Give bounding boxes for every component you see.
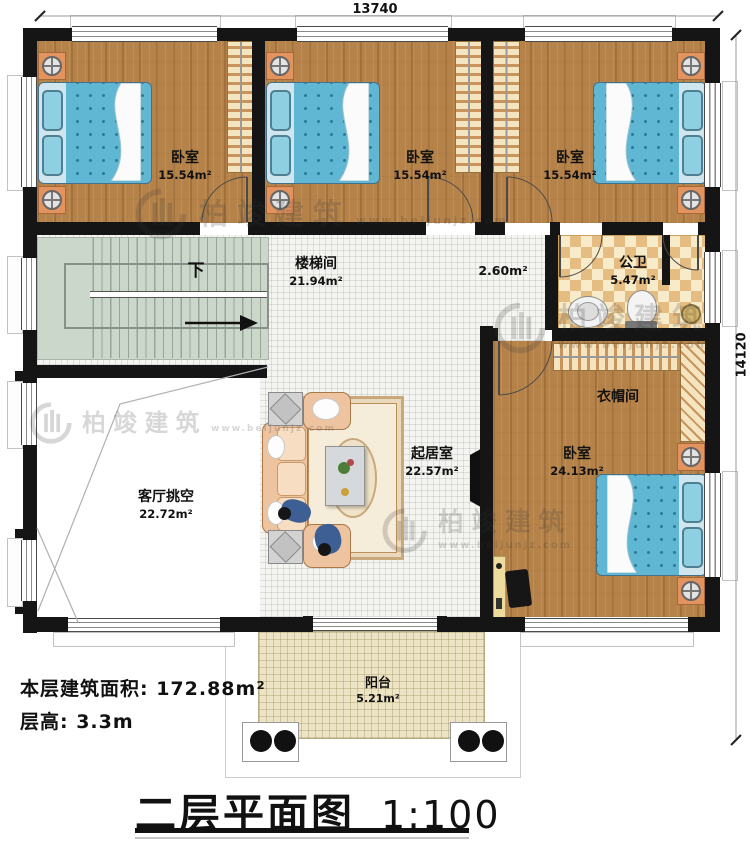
stair-rail-center (90, 291, 267, 298)
nightstand-lamp-icon (266, 186, 294, 214)
bed-sheet (101, 83, 141, 181)
wall (550, 222, 560, 235)
throw-pillow (267, 435, 285, 459)
nightstand-lamp-icon (38, 52, 66, 80)
decor-item (496, 598, 502, 609)
window (72, 26, 217, 42)
person-figure-head (278, 507, 291, 520)
room-area: 15.54m² (158, 168, 211, 182)
floor-plan: 柏竣建筑 www.beijunjz.com 柏竣建筑 www.beijunjz.… (0, 0, 750, 854)
room-label-master-bedroom: 卧室 24.13m² (550, 446, 603, 478)
room-area: 15.54m² (393, 168, 446, 182)
wall (480, 326, 493, 617)
room-area: 22.72m² (138, 507, 194, 521)
wall (23, 187, 37, 258)
wall (688, 617, 720, 632)
pillow (270, 135, 291, 176)
window (21, 77, 37, 187)
wall (23, 28, 37, 77)
room-label-living-void: 客厅挑空 22.72m² (138, 489, 194, 521)
window-sill (722, 471, 738, 581)
wall (37, 222, 200, 235)
pillow (42, 135, 63, 176)
pillow (270, 90, 291, 131)
dimension-width: 13740 (0, 2, 750, 17)
toilet-icon (627, 290, 657, 325)
room-label-cloakroom: 衣帽间 (597, 386, 639, 406)
person-figure-head (318, 543, 331, 556)
nightstand-lamp-icon (677, 577, 705, 605)
wall (23, 617, 68, 632)
pier-column-icon (458, 730, 480, 752)
room-label-bedroom-2: 卧室 15.54m² (393, 150, 446, 182)
sink-basin (577, 302, 599, 321)
wall (440, 617, 525, 632)
wall (248, 222, 426, 235)
wall (23, 365, 267, 378)
nightstand-lamp-icon (266, 52, 294, 80)
window (21, 258, 37, 330)
wardrobe-bedroom-1 (227, 41, 255, 173)
bed (596, 474, 707, 576)
door-post (303, 616, 313, 632)
room-label-bedroom-3: 卧室 15.54m² (543, 150, 596, 182)
wardrobe-bedroom-2 (455, 41, 483, 173)
nightstand-lamp-icon (38, 186, 66, 214)
window (21, 540, 37, 601)
wall (698, 222, 705, 235)
cloakroom-rack-right (680, 343, 707, 442)
floor-drain-icon (681, 304, 701, 324)
nightstand-lamp-icon (677, 443, 705, 471)
room-area: 22.57m² (405, 464, 458, 478)
room-area: 15.54m² (543, 168, 596, 182)
pillow (42, 90, 63, 131)
wall (252, 28, 265, 235)
door-post (437, 616, 447, 632)
bed-sheet (329, 83, 369, 181)
wall (705, 187, 720, 252)
floor-area-note: 本层建筑面积: 172.88m² (20, 674, 266, 701)
wall (552, 328, 705, 341)
tv-icon (505, 569, 532, 609)
window (68, 618, 220, 632)
wall (220, 617, 307, 632)
wall (602, 222, 663, 235)
window-sill (520, 632, 694, 647)
wall (545, 235, 558, 330)
room-name: 起居室 (405, 446, 458, 464)
wall (481, 28, 493, 235)
room-area: 21.94m² (289, 274, 342, 288)
corridor-area-label: 2.60m² (478, 263, 527, 278)
wall (662, 235, 670, 285)
room-name: 客厅挑空 (138, 489, 194, 507)
coffee-table (325, 446, 365, 506)
title-underline (135, 828, 469, 833)
pillow (682, 135, 703, 176)
bed-sheet (607, 475, 647, 573)
room-area: 5.21m² (356, 692, 399, 706)
room-label-living-room: 起居室 22.57m² (405, 446, 458, 478)
decor-item (496, 563, 502, 569)
room-name: 卧室 (393, 150, 446, 168)
side-table (268, 530, 303, 564)
armchair (303, 392, 351, 430)
sofa-cushion (277, 462, 306, 496)
room-name: 卧室 (158, 150, 211, 168)
wall (493, 328, 498, 341)
bed (38, 82, 152, 184)
flower-decor-icon (347, 459, 354, 466)
window (704, 473, 721, 577)
side-table (268, 392, 303, 426)
pillow (682, 90, 703, 131)
nightstand-lamp-icon (677, 52, 705, 80)
title-underline-light (135, 837, 469, 839)
wall (705, 323, 720, 473)
window (525, 26, 672, 42)
window (525, 618, 688, 632)
window-sill (722, 81, 738, 191)
bed (593, 82, 707, 184)
wardrobe-bedroom-3 (493, 41, 520, 173)
room-area: 5.47m² (610, 273, 655, 287)
balcony-sliding-door (307, 618, 440, 631)
pier-column-icon (250, 730, 272, 752)
window (297, 26, 448, 42)
room-label-bathroom: 公卫 5.47m² (610, 255, 655, 287)
bed (266, 82, 380, 184)
floor-height-note: 层高: 3.3m (20, 707, 134, 734)
pier-column-icon (482, 730, 504, 752)
room-label-stair-hall: 楼梯间 21.94m² (289, 256, 342, 288)
room-label-bedroom-1: 卧室 15.54m² (158, 150, 211, 182)
room-name: 楼梯间 (289, 256, 342, 274)
nightstand-lamp-icon (677, 186, 705, 214)
window (21, 383, 37, 445)
wall (705, 28, 720, 83)
window-sill (53, 632, 235, 647)
room-name: 卧室 (550, 446, 603, 464)
flower-decor-icon (341, 488, 349, 496)
window (704, 252, 721, 323)
bed-sheet (606, 83, 646, 181)
room-name: 卧室 (543, 150, 596, 168)
window (704, 83, 721, 187)
room-name: 阳台 (356, 676, 399, 692)
wall (23, 445, 37, 540)
throw-pillow (312, 398, 340, 420)
window-sill (722, 250, 738, 327)
room-label-balcony: 阳台 5.21m² (356, 676, 399, 706)
room-name: 公卫 (610, 255, 655, 273)
room-area: 24.13m² (550, 464, 603, 478)
pillow (682, 482, 703, 523)
stair-down-label: 下 (188, 256, 205, 281)
pier-column-icon (274, 730, 296, 752)
dimension-height: 14120 (735, 318, 750, 378)
pillow (682, 527, 703, 568)
